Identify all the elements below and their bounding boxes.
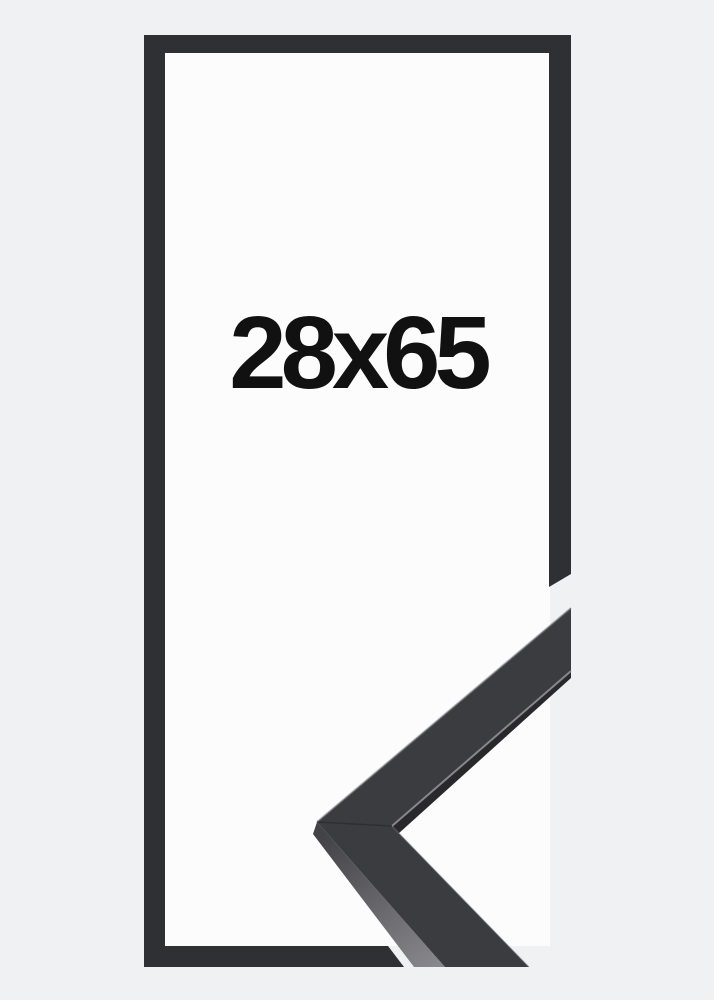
frame-graphic	[0, 0, 714, 1000]
size-label: 28x65	[165, 294, 550, 412]
product-image: 28x65	[0, 0, 714, 1000]
